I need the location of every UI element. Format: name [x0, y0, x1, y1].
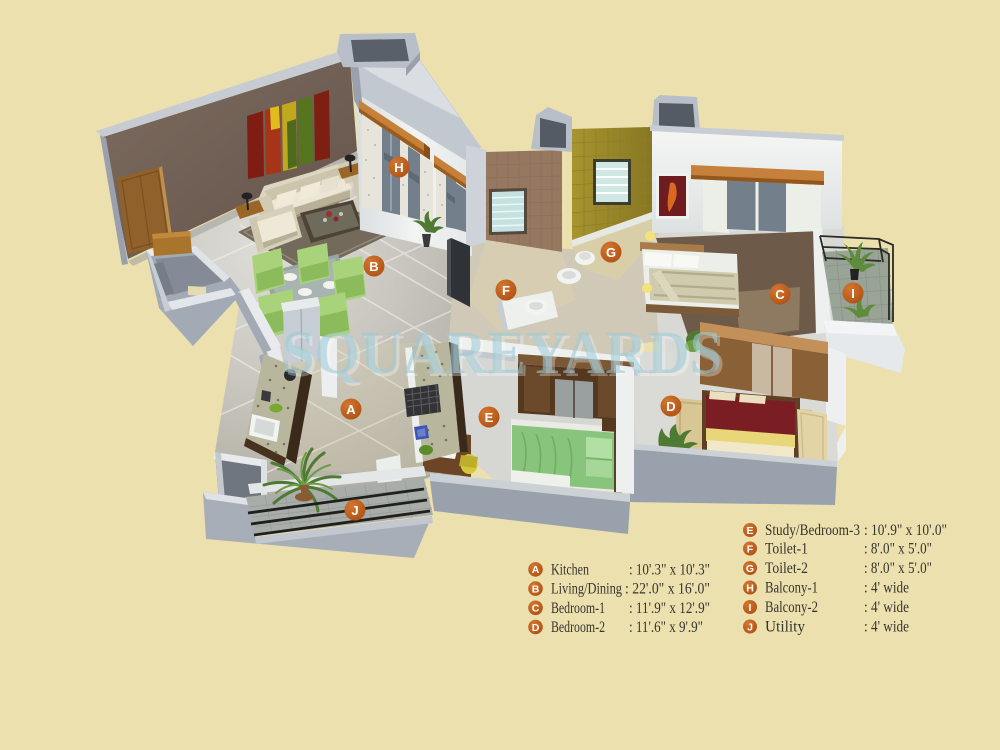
svg-text:B: B [532, 583, 540, 595]
svg-text:: 11'.9" x 12'.9": : 11'.9" x 12'.9" [629, 600, 710, 617]
svg-text:Living/Dining: Living/Dining [551, 581, 622, 598]
svg-text:B: B [369, 259, 378, 274]
svg-text:: 8'.0" x 5'.0": : 8'.0" x 5'.0" [864, 541, 932, 558]
svg-text:H: H [746, 582, 754, 594]
svg-text:: 10'.3" x 10'.3": : 10'.3" x 10'.3" [629, 561, 710, 578]
svg-text:: 10'.9" x 10'.0": : 10'.9" x 10'.0" [864, 522, 947, 539]
svg-text:SQUAREYARDS: SQUAREYARDS [282, 320, 722, 387]
svg-text:J: J [747, 621, 753, 633]
svg-text:: 22'.0" x 16'.0": : 22'.0" x 16'.0" [625, 581, 710, 598]
svg-text:A: A [532, 564, 540, 576]
svg-text:Balcony-1: Balcony-1 [765, 580, 818, 597]
svg-text:: 4' wide: : 4' wide [864, 619, 909, 636]
svg-text:G: G [606, 245, 616, 260]
svg-text:C: C [775, 287, 785, 302]
svg-text:: 4' wide: : 4' wide [864, 599, 909, 616]
svg-text:H: H [394, 160, 403, 175]
svg-text:I: I [851, 286, 855, 301]
svg-text:Bedroom-2: Bedroom-2 [551, 619, 605, 636]
svg-text:: 11'.6" x 9'.9": : 11'.6" x 9'.9" [629, 619, 703, 636]
svg-text:G: G [746, 563, 754, 575]
svg-text:Bedroom-1: Bedroom-1 [551, 600, 605, 617]
svg-text:D: D [532, 622, 540, 634]
svg-text:F: F [502, 283, 510, 298]
svg-text:Toilet-1: Toilet-1 [765, 541, 808, 558]
svg-text:Utility: Utility [765, 619, 805, 636]
svg-text:E: E [746, 525, 753, 537]
svg-text:J: J [351, 503, 358, 518]
svg-text:I: I [749, 602, 752, 614]
svg-text:A: A [346, 402, 356, 417]
svg-text:D: D [666, 399, 675, 414]
svg-text:F: F [747, 543, 754, 555]
svg-text:Balcony-2: Balcony-2 [765, 599, 818, 616]
svg-text:Toilet-2: Toilet-2 [765, 560, 808, 577]
svg-text:Kitchen: Kitchen [551, 561, 589, 578]
svg-text:Study/Bedroom-3: Study/Bedroom-3 [765, 522, 860, 539]
svg-text:C: C [532, 603, 540, 615]
svg-text:: 4' wide: : 4' wide [864, 580, 909, 597]
svg-text:: 8'.0" x 5'.0": : 8'.0" x 5'.0" [864, 560, 932, 577]
svg-text:E: E [485, 410, 494, 425]
